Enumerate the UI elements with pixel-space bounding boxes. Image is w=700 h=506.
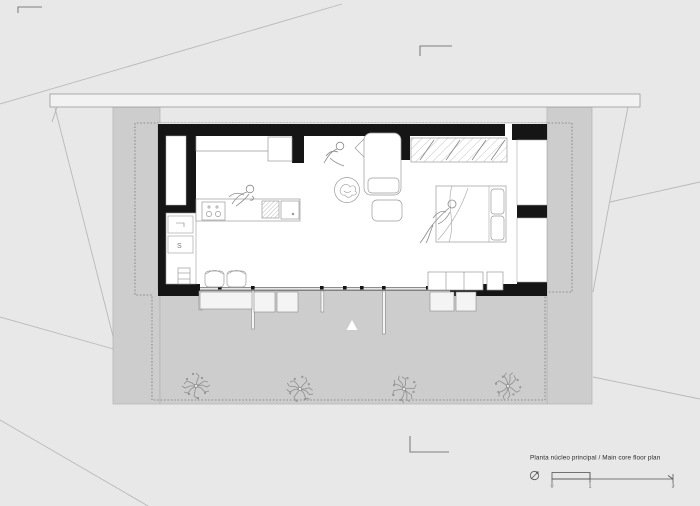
terrain-line [0, 317, 117, 350]
ottoman [372, 200, 402, 221]
pillow [491, 216, 504, 240]
laundry-appliance-1 [168, 216, 193, 233]
scale-bar [552, 473, 673, 484]
title-block: Planta núcleo principal / Main core floo… [530, 455, 675, 490]
north-arrow-icon [530, 471, 539, 479]
stove [202, 202, 225, 220]
wall-south-west [158, 284, 200, 296]
tall-cabinet [268, 137, 292, 161]
drawing-canvas: S [0, 0, 700, 506]
upper-retaining-wall [50, 94, 640, 107]
site-left-band [113, 107, 160, 404]
terrain-line [0, 420, 148, 506]
dining-table [335, 178, 360, 203]
site-right-band [547, 107, 592, 404]
closet-east-upper [517, 140, 547, 205]
terrain-line [593, 377, 700, 399]
pillow [491, 189, 504, 214]
wall-stub-kitchen [292, 136, 304, 163]
drawing-title: Planta núcleo principal / Main core floo… [530, 455, 661, 462]
sofa-cushion [368, 178, 399, 193]
wall-west-inner [186, 136, 196, 213]
tv-console [428, 272, 483, 290]
wall-east-bottom [517, 282, 547, 296]
wall-west-divider [158, 205, 196, 213]
service-door [178, 268, 190, 284]
corner-mark-top-right [420, 46, 452, 56]
wall-north [158, 124, 505, 136]
drainboard [262, 201, 279, 218]
sink [281, 201, 299, 219]
wardrobe [411, 138, 507, 162]
terrain-line [0, 4, 342, 104]
closet-west-storage [166, 136, 186, 205]
corner-mark-bottom [410, 436, 449, 452]
closet-east-lower [517, 218, 547, 282]
scale-tick-1: 1 [589, 484, 592, 490]
scale-tick-0: 0 [551, 484, 554, 490]
siphon-glyph: S [177, 243, 182, 250]
terrain-line [610, 182, 700, 202]
terrain-line [55, 108, 117, 352]
corner-mark-top-left [18, 7, 42, 13]
wall-east-divider [517, 205, 547, 218]
scale-tick-end: 3 [672, 484, 675, 490]
side-box [487, 272, 503, 290]
wall-north-east-block [512, 124, 547, 140]
bed [436, 186, 506, 242]
